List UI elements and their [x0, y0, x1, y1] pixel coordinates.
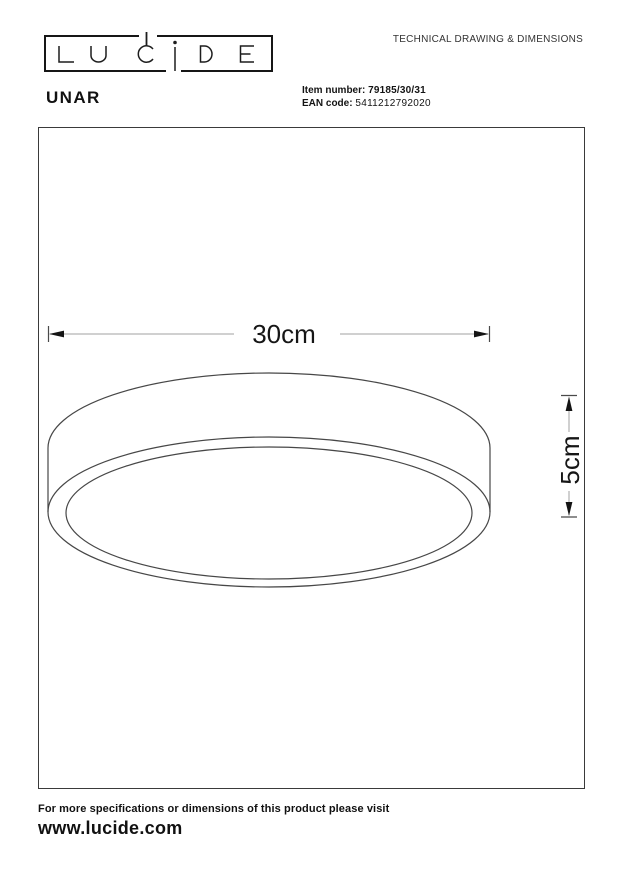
logo-box [45, 34, 272, 73]
website-link[interactable]: www.lucide.com [38, 818, 183, 839]
dimension-label-height: 5cm [557, 435, 583, 484]
item-number-value: 79185/30/31 [368, 85, 426, 96]
ean-code-row: EAN code: 5411212792020 [302, 98, 431, 111]
footer: For more specifications or dimensions of… [38, 803, 389, 839]
document-title: TECHNICAL DRAWING & DIMENSIONS [393, 34, 583, 45]
ean-code-value: 5411212792020 [355, 98, 430, 109]
dimension-label-width: 30cm [252, 321, 316, 347]
product-codes: Item number: 79185/30/31 EAN code: 54112… [302, 85, 431, 110]
lucide-logo [44, 31, 273, 73]
footer-note: For more specifications or dimensions of… [38, 803, 389, 815]
item-number-label: Item number: [302, 85, 365, 96]
item-number-row: Item number: 79185/30/31 [302, 85, 431, 98]
page: TECHNICAL DRAWING & DIMENSIONS UNAR Item… [0, 0, 620, 877]
ean-code-label: EAN code: [302, 98, 353, 109]
product-name: UNAR [46, 88, 101, 108]
drawing-frame [38, 127, 585, 789]
